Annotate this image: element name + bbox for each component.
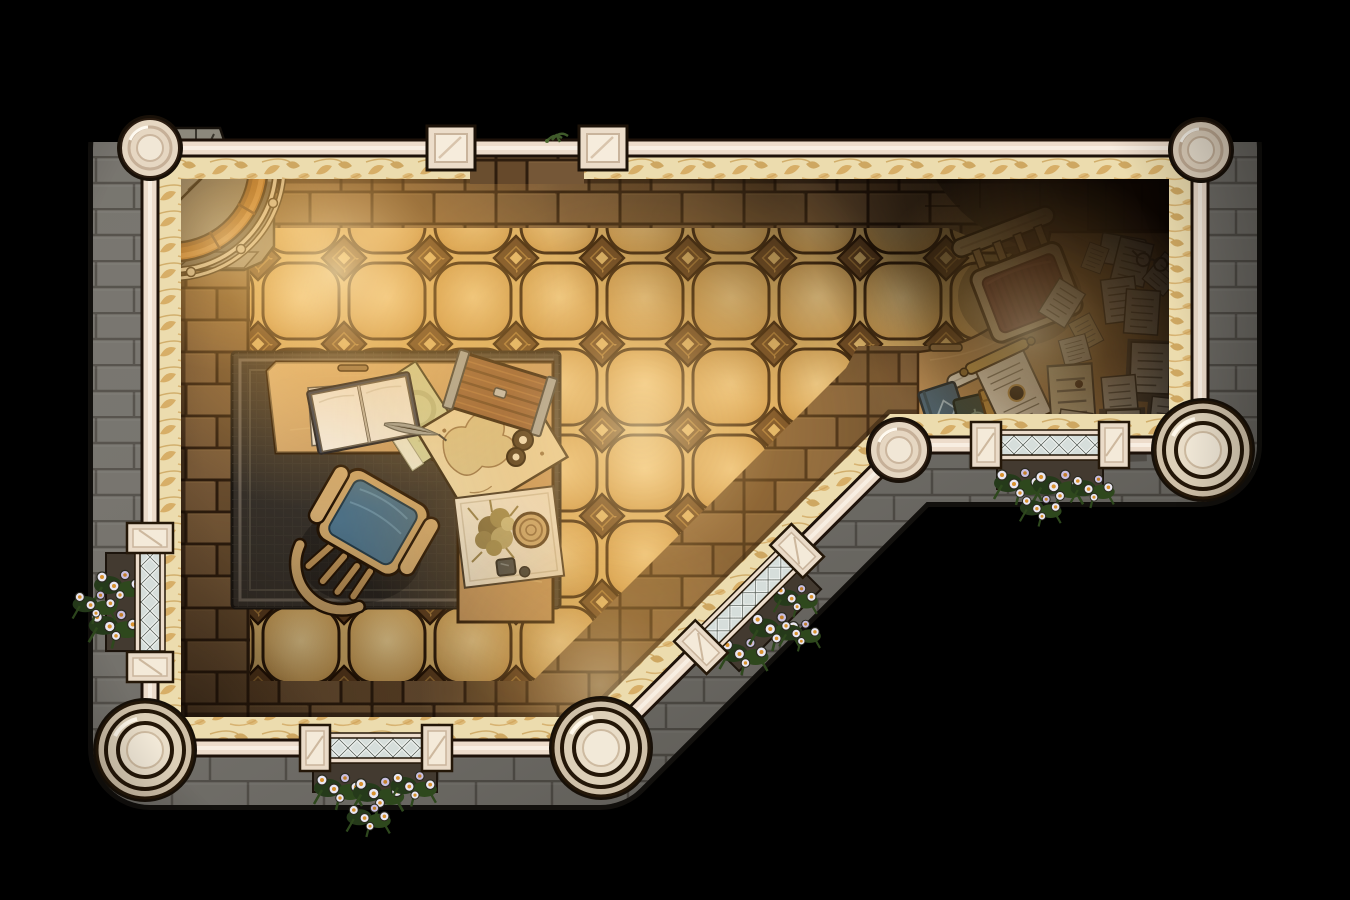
map-viewport [0, 0, 1350, 900]
outer-vignette [0, 0, 1350, 900]
study-room-battle-map [0, 0, 1350, 900]
